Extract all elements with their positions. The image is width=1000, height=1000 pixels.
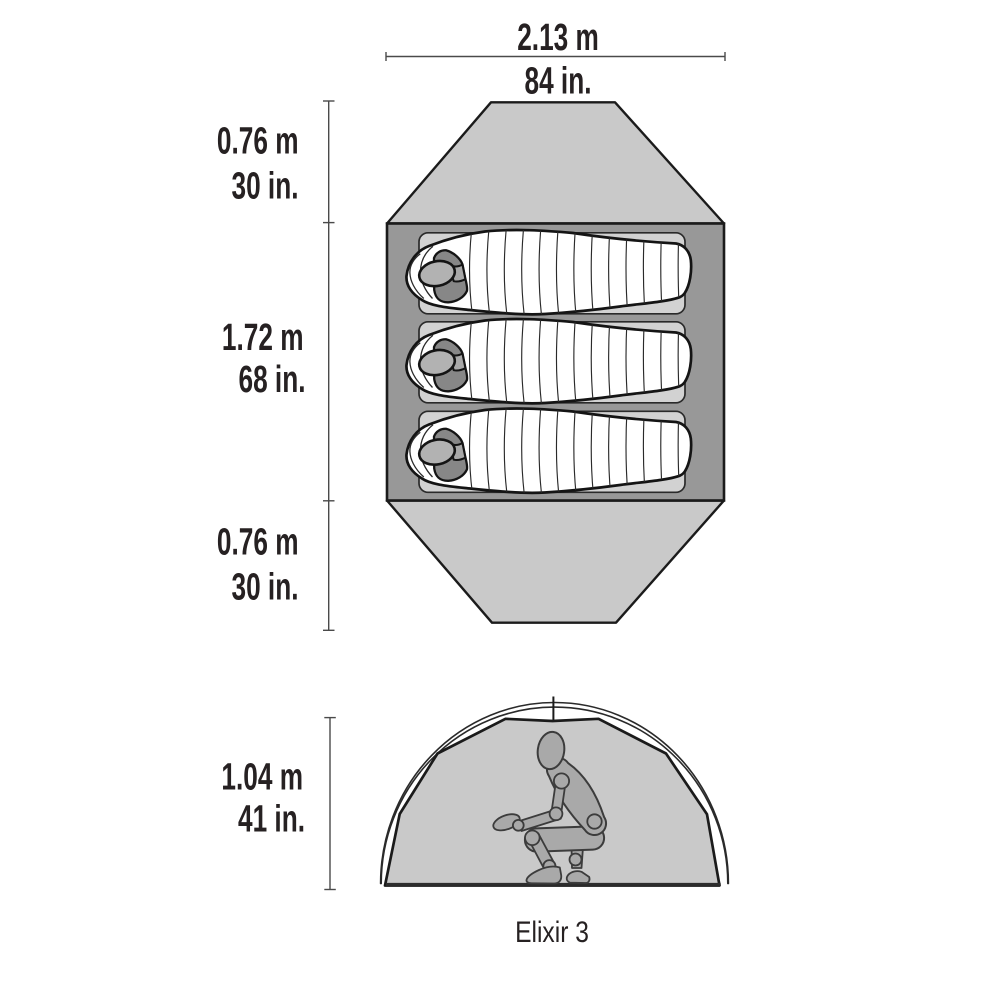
svg-text:0.76 m: 0.76 m (217, 119, 299, 162)
svg-text:68 in.: 68 in. (238, 357, 305, 400)
svg-text:30 in.: 30 in. (231, 565, 298, 608)
svg-text:84 in.: 84 in. (524, 59, 591, 102)
svg-text:30 in.: 30 in. (231, 164, 298, 207)
svg-text:41 in.: 41 in. (238, 797, 305, 840)
svg-text:1.04 m: 1.04 m (221, 755, 303, 798)
svg-text:0.76 m: 0.76 m (217, 520, 299, 563)
svg-text:Elixir 3: Elixir 3 (515, 915, 589, 949)
svg-text:2.13 m: 2.13 m (517, 15, 599, 58)
svg-text:1.72 m: 1.72 m (222, 315, 304, 358)
